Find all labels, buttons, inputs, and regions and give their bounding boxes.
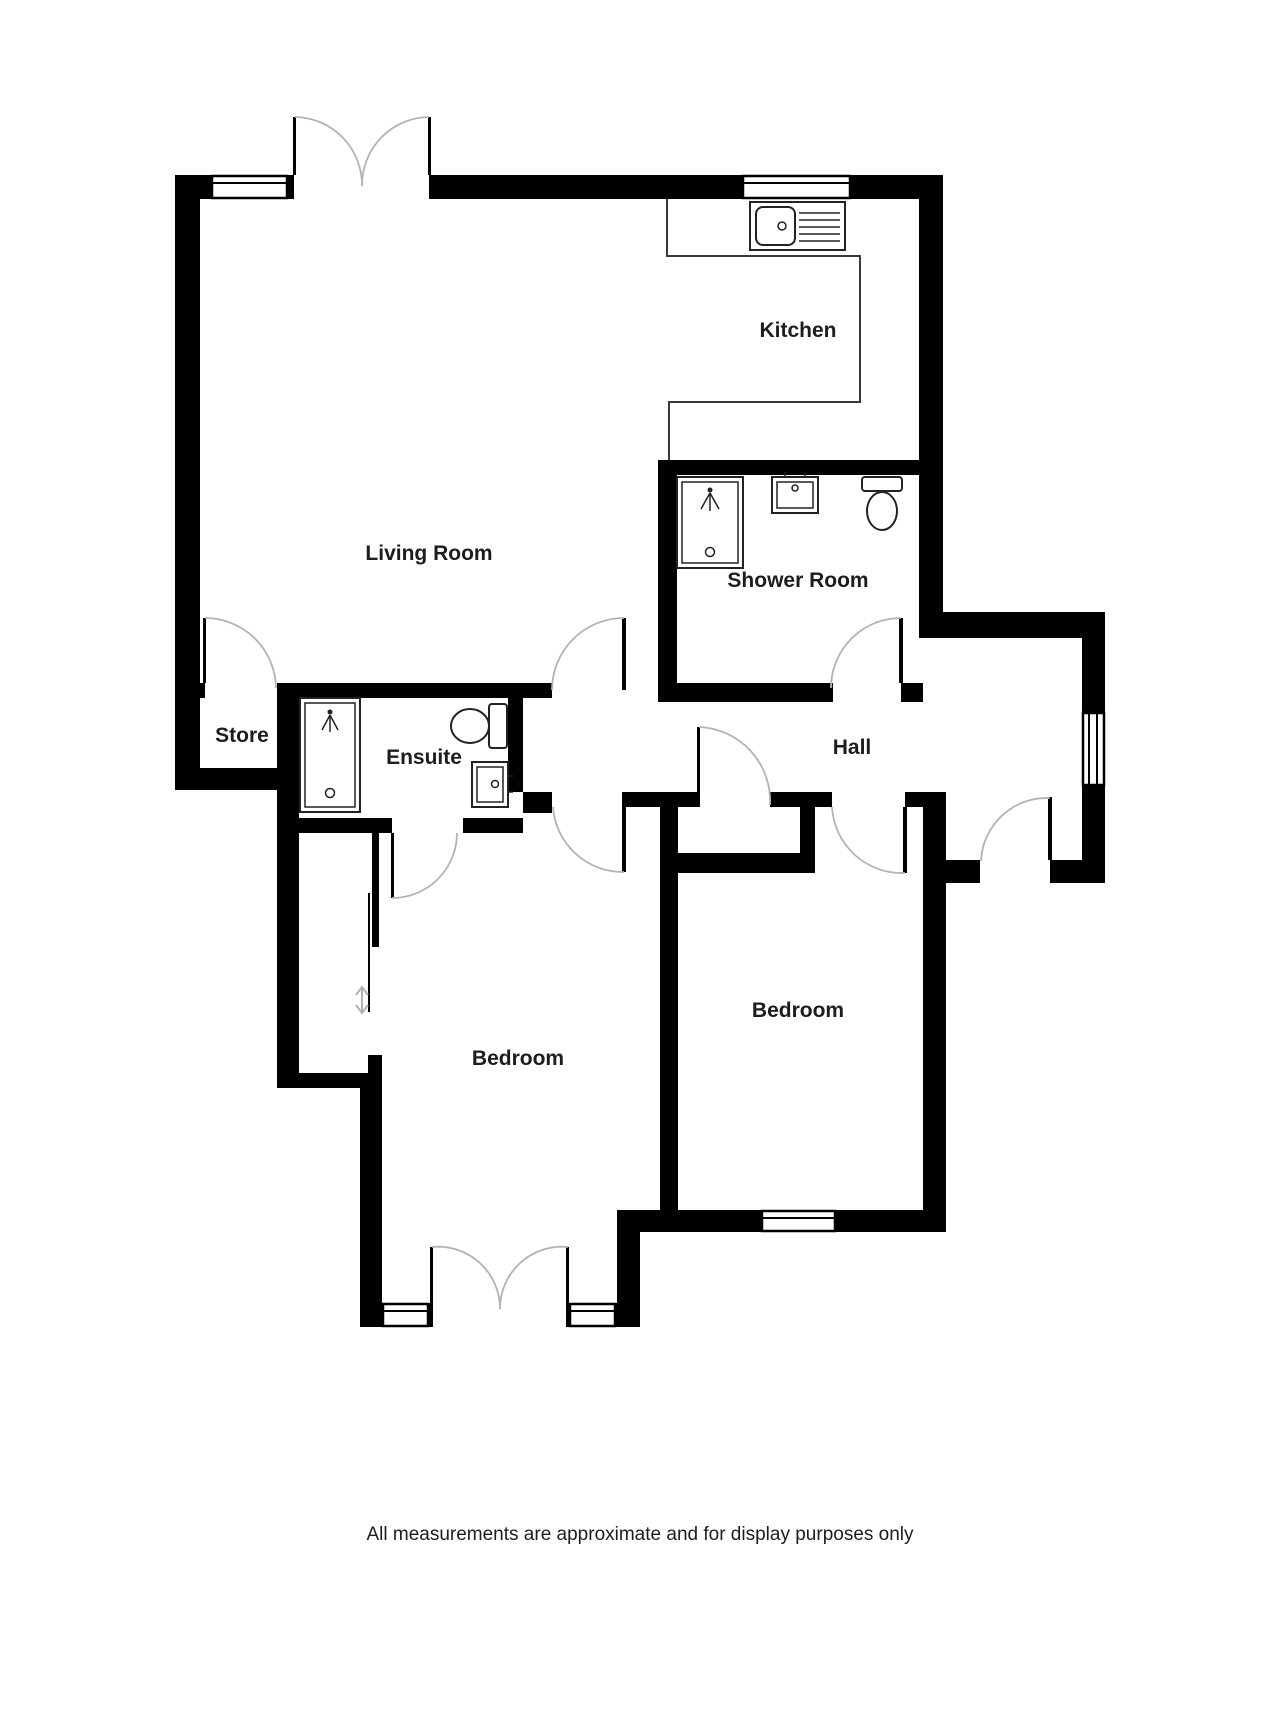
bedroom-right-door <box>832 807 907 873</box>
kitchen-sink <box>750 202 845 250</box>
bedroom-left-door <box>553 807 626 872</box>
shower-enclosure <box>677 477 743 568</box>
ensuite-basin <box>472 762 513 807</box>
room-label-living-room: Living Room <box>365 542 492 565</box>
room-label-ensuite: Ensuite <box>386 746 462 769</box>
room-label-kitchen: Kitchen <box>759 319 836 342</box>
window <box>383 1304 428 1326</box>
entrance-door <box>981 797 1052 861</box>
window <box>1083 713 1104 785</box>
room-label-shower-room: Shower Room <box>727 569 868 592</box>
room-label-store: Store <box>215 724 269 747</box>
french-doors-bottom <box>430 1247 569 1309</box>
living-room-hall-door <box>552 618 626 690</box>
shower-room-toilet <box>862 477 902 530</box>
shower-room-basin <box>772 472 818 513</box>
window <box>743 176 850 198</box>
ensuite-door <box>391 833 457 898</box>
hall-cupboard-door <box>697 727 770 807</box>
store-door <box>203 618 276 688</box>
window <box>762 1211 835 1231</box>
ensuite-toilet <box>451 704 507 748</box>
room-label-hall: Hall <box>833 736 872 759</box>
window <box>570 1304 615 1326</box>
room-label-bedroom-right: Bedroom <box>752 999 844 1022</box>
shower-room-door <box>831 618 903 688</box>
disclaimer-caption: All measurements are approximate and for… <box>366 1524 914 1545</box>
french-doors-top <box>293 117 431 186</box>
room-label-bedroom-left: Bedroom <box>472 1047 564 1070</box>
sliding-door <box>356 833 379 1013</box>
window <box>212 176 287 198</box>
ensuite-shower-enclosure <box>300 698 360 812</box>
floor-plan: Living Room Kitchen Shower Room Store En… <box>0 0 1280 1732</box>
